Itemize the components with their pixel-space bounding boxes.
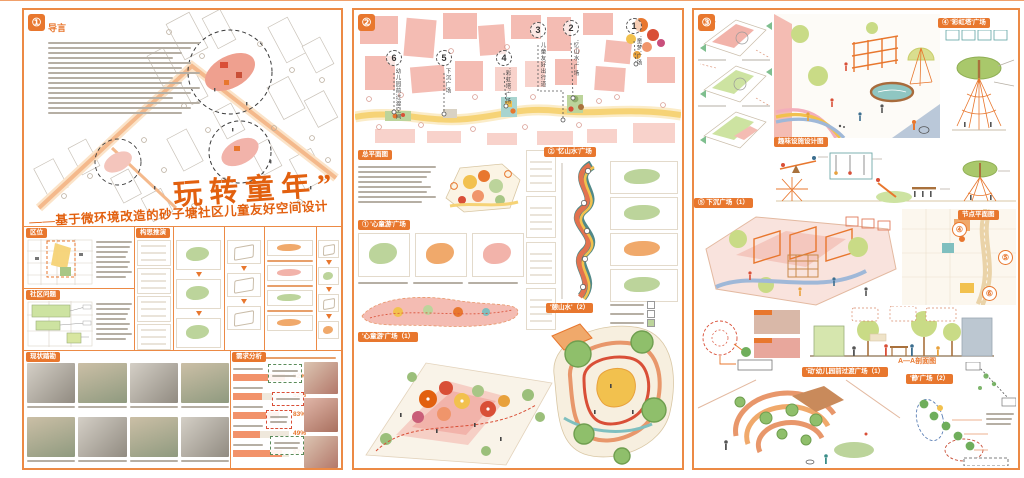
section1-plan-blob [358, 292, 522, 330]
jing-diagram-labels [986, 410, 1014, 428]
flow-box [472, 233, 524, 277]
intro-block: 导言 [48, 18, 200, 148]
survey-photo [130, 417, 178, 468]
analysis-grid: 区位 社区问题 现状踏勘 [24, 226, 341, 468]
arrow-down-icon [326, 260, 332, 265]
concept-column-1 [137, 240, 171, 350]
annotation-box [268, 364, 302, 383]
plan-marker-5-label: 下沉广场 [444, 68, 450, 94]
render-sunken-plaza [696, 209, 900, 307]
arrow-down-icon [196, 311, 202, 316]
serpentine-path-diagram [560, 161, 606, 301]
node-num-4: ④ [952, 222, 967, 237]
section2-header: ② '忆山水'广场 [544, 147, 596, 157]
node-plan-tag: 节点平面图 [958, 210, 999, 220]
render-terraced-plaza [696, 378, 902, 466]
node-num-6: ⑥ [982, 286, 997, 301]
panel-3: ③ [692, 8, 1020, 470]
equipment-design-drawings [774, 149, 1018, 207]
behavior-diagram [696, 308, 804, 372]
survey-photo [130, 363, 178, 414]
render1-tag: '心童游'广场（1） [358, 332, 418, 342]
arrow-down-icon [241, 299, 247, 304]
concept-column-3 [227, 240, 261, 330]
annotation-box [272, 392, 304, 406]
callout-box [610, 233, 678, 266]
design-poster: ① [0, 0, 1024, 478]
legend-swatch [647, 301, 655, 309]
masterplan-header: 总平面图 [358, 150, 392, 160]
panel-1-number-badge: ① [28, 14, 45, 31]
arrow-down-icon [326, 287, 332, 292]
survey-photo [181, 417, 229, 468]
concept-column-5 [318, 240, 339, 339]
plan-marker-5: 5 [436, 50, 452, 66]
plan-marker-1-label: '童梦'广场 [635, 36, 641, 66]
annotation-box [266, 410, 292, 429]
callout-box [610, 269, 678, 302]
survey-photo [27, 417, 75, 468]
plan-marker-3-label: 儿童友好出行道 [539, 42, 545, 88]
panel-3-number-badge: ③ [698, 14, 715, 31]
survey-photo [181, 363, 229, 414]
sunken-plaza-tag: ⑤ 下沉广场（1） [694, 198, 753, 208]
arrow-down-icon [196, 272, 202, 277]
issues-text-placeholder [96, 300, 132, 343]
concept-column-2 [176, 240, 221, 348]
dong-plaza-tag: '动'幼儿园前过渡广场（1） [802, 367, 888, 377]
jing-plaza-tag: '静'广场（2） [906, 374, 953, 384]
plan-marker-4: 4 [496, 50, 512, 66]
intro-text-placeholder [48, 39, 200, 117]
plan-marker-6-label: 幼儿园前过渡空间 [394, 68, 400, 120]
annotation-box [270, 436, 304, 455]
survey-photo [78, 363, 126, 414]
flow-box [358, 233, 410, 277]
survey-photo [78, 417, 126, 468]
plan-marker-1: 1 [626, 18, 642, 34]
render-xintongyou-plaza [356, 343, 554, 467]
section2-callouts [610, 161, 678, 302]
render-rainbow-tower-plaza [774, 14, 940, 138]
section-concept-header: 构思推演 [136, 228, 170, 238]
location-map-sketch [27, 239, 93, 285]
arrow-down-icon [241, 266, 247, 271]
plan-marker-2-label: '忆山水'广场 [572, 40, 578, 77]
demand-analysis-block: 需求分析 92% 52% [232, 352, 339, 466]
section1-header: ① '心童游'广场 [358, 220, 410, 230]
intro-title: 导言 [48, 23, 66, 33]
panel-3-number: ③ [702, 16, 712, 29]
plan-marker-6: 6 [386, 50, 402, 66]
masterplan-mini-plan [440, 158, 524, 216]
section-issues-header: 社区问题 [26, 290, 60, 300]
panel-2-number-badge: ② [358, 14, 375, 31]
panel-1: ① [22, 8, 343, 470]
section-aa-label: A—A剖面图 [898, 356, 936, 366]
survey-photo [27, 363, 75, 414]
plan-marker-3: 3 [530, 22, 546, 38]
callout-box [610, 161, 678, 194]
tree-net-tower-sketch [942, 30, 1016, 136]
section-survey-header: 现状踏勘 [26, 352, 60, 362]
issues-map-sketch [27, 301, 93, 347]
panel-1-number: ① [32, 16, 42, 29]
rainbow-plaza-tag: ④ '彩虹塔'广场 [938, 18, 990, 28]
panel-2-number: ② [362, 16, 372, 29]
section-demand-header: 需求分析 [232, 352, 266, 362]
render2-tag: '憩山水'（2） [546, 303, 593, 313]
site-analysis-sketches [696, 14, 772, 154]
location-text-placeholder [96, 238, 132, 281]
plan-marker-4-label: '彩虹塔'广场 [504, 68, 510, 105]
demand-top-note [264, 354, 336, 362]
section1-flow [358, 233, 524, 287]
callout-box [610, 197, 678, 230]
survey-photo-grid [27, 363, 229, 467]
demand-photos [304, 362, 338, 468]
masterplan-text-placeholder [358, 163, 436, 206]
arrow-down-icon [326, 314, 332, 319]
legend-row [610, 300, 678, 309]
equipment-design-tag: 趣味设施设计图 [774, 137, 828, 147]
flow-box [415, 233, 467, 277]
render-qishanshui-hill [544, 314, 680, 466]
panel-2: ② [352, 8, 684, 470]
top-edge-line [0, 0, 1024, 1]
concept-column-4 [267, 240, 313, 331]
node-num-5: ⑤ [998, 250, 1013, 265]
plan-marker-2: 2 [563, 20, 579, 36]
